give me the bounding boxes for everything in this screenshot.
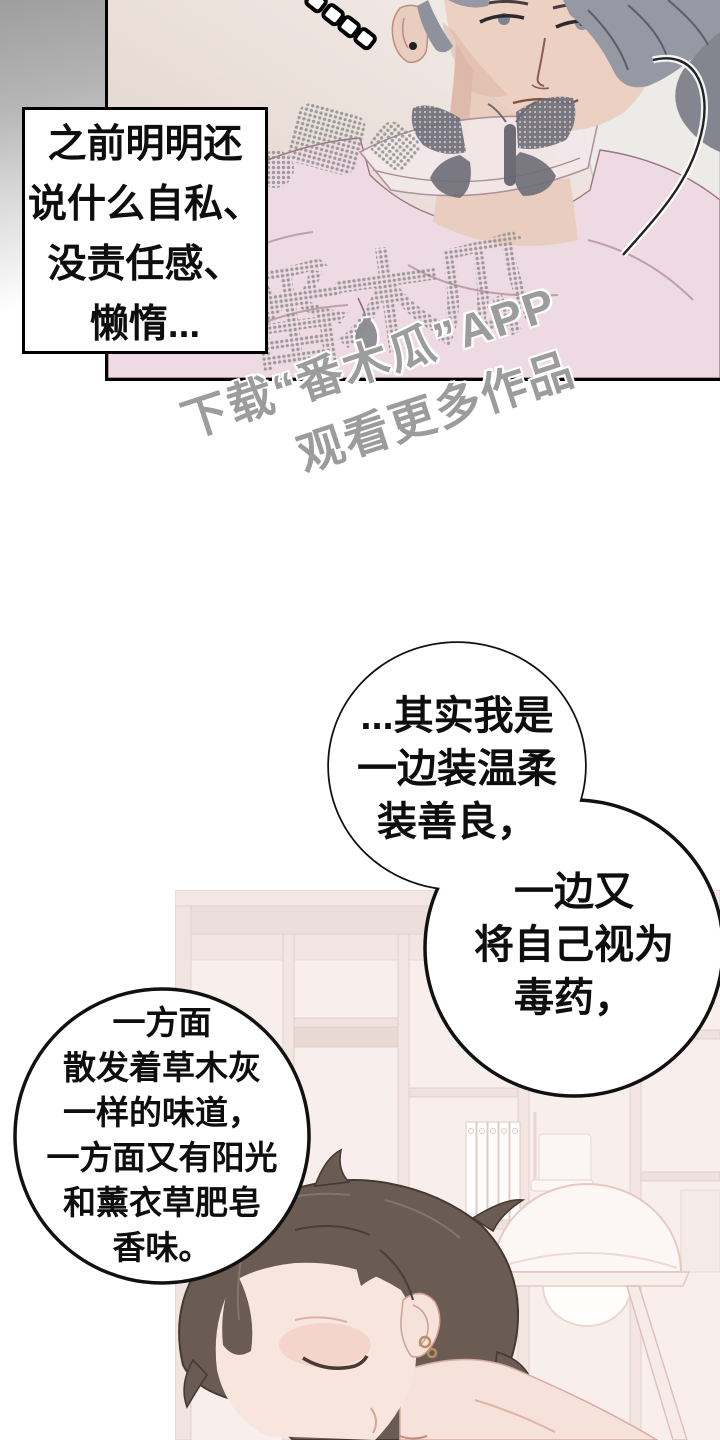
bubble-b-text: 一边又 将自己视为 毒药， [440,866,708,1025]
narration-box: 之前明明还 说什么自私、 没责任感、 懒惰... [22,107,268,354]
earring-stud [409,42,417,50]
bubble-c-line: 散发着草木灰 [17,1045,307,1090]
bubble-a-line: 一边装温柔 [329,743,585,796]
bubble-c-line: 一样的味道， [17,1090,307,1135]
bubble-a-line: 装善良， [329,796,585,849]
bubble-b-line: 一边又 [440,866,708,919]
narration-line: 说什么自私、 [25,175,265,235]
bubble-a-text: ...其实我是 一边装温柔 装善良， [329,690,585,849]
blush [279,1323,371,1367]
comic-page: 番木瓜 之前明明还 说什么自私、 没责任感、 懒惰... 下载“番木瓜”APP … [0,0,720,1440]
bubble-c-line: 一方面又有阳光 [17,1135,307,1180]
bubble-b-line: 毒药， [440,972,708,1025]
bubble-c-line: 香味。 [17,1225,307,1270]
bubble-c-text: 一方面 散发着草木灰 一样的味道， 一方面又有阳光 和薰衣草肥皂 香味。 [17,1000,307,1270]
narration-line: 懒惰... [25,295,265,355]
bubble-b-line: 将自己视为 [440,919,708,972]
narration-line: 之前明明还 [25,115,265,175]
narration-line: 没责任感、 [25,235,265,295]
bubble-c-line: 和薰衣草肥皂 [17,1180,307,1225]
bubble-a-line: ...其实我是 [329,690,585,743]
bubble-c-line: 一方面 [17,1000,307,1045]
